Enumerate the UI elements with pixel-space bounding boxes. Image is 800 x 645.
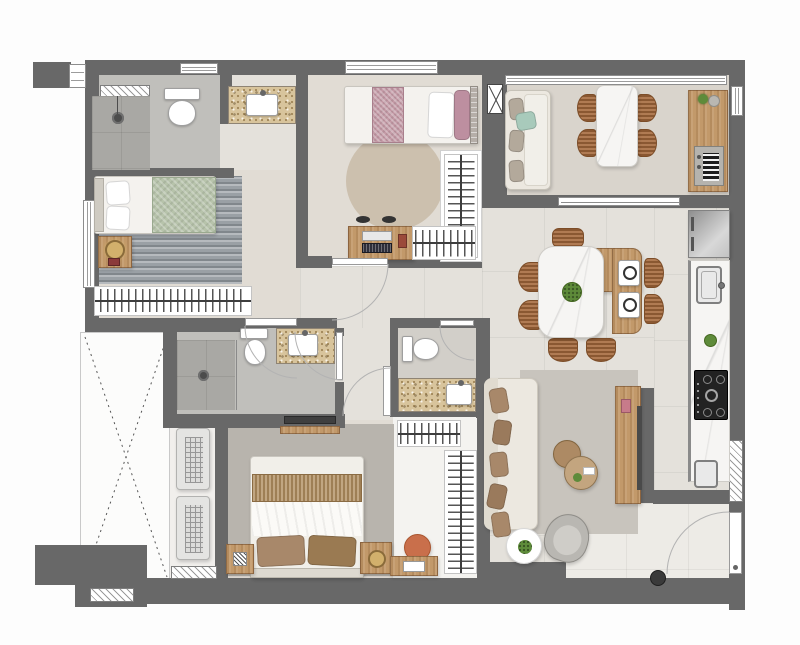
door-swing-arcs bbox=[0, 0, 800, 645]
floor-plan bbox=[0, 0, 800, 645]
